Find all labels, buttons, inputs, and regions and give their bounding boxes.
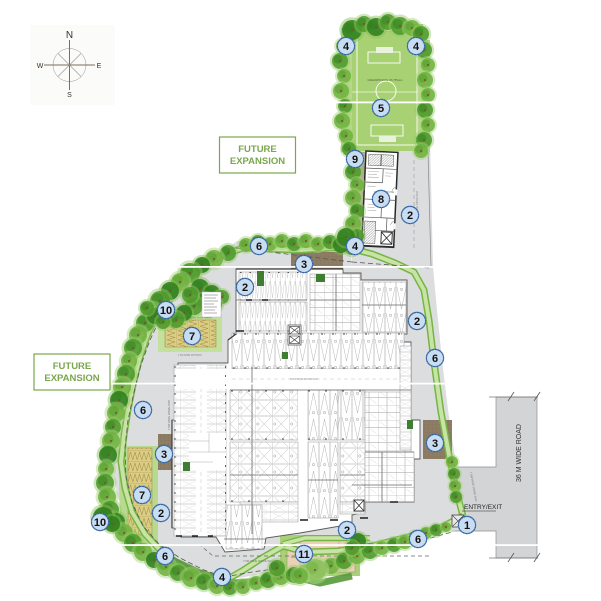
svg-text:ENTRY/EXIT: ENTRY/EXIT [464,504,502,511]
svg-text:6: 6 [432,353,438,365]
svg-text:6: 6 [256,241,262,253]
svg-text:4: 4 [219,572,226,584]
svg-text:FUTURE: FUTURE [53,361,92,372]
svg-text:36 M WIDE ROAD: 36 M WIDE ROAD [516,424,523,482]
svg-text:3: 3 [432,438,438,450]
svg-text:2: 2 [414,316,420,328]
svg-text:1.5M WIDE PATHWAY: 1.5M WIDE PATHWAY [178,354,202,357]
svg-text:2: 2 [158,508,164,520]
svg-text:2: 2 [242,282,248,294]
svg-text:4: 4 [352,241,359,253]
svg-text:9: 9 [352,154,358,166]
svg-text:2: 2 [407,210,413,222]
svg-text:COMMUNICABLE PARKING STRIP GRE: COMMUNICABLE PARKING STRIP GREEN [168,317,212,320]
svg-text:4: 4 [343,41,350,53]
svg-text:7: 7 [139,490,145,502]
svg-text:10: 10 [160,305,172,317]
svg-text:4: 4 [413,41,420,53]
svg-text:7: 7 [189,331,195,343]
svg-text:W: W [37,63,44,70]
svg-text:8.5M WIDE DRIVE WAY: 8.5M WIDE DRIVE WAY [290,377,319,381]
svg-text:EXPANSION: EXPANSION [44,373,99,384]
svg-text:1: 1 [464,520,470,532]
svg-text:3: 3 [301,259,307,271]
svg-text:S: S [67,92,72,99]
svg-text:EXPANSION: EXPANSION [230,156,285,167]
svg-text:6: 6 [415,534,421,546]
svg-text:N: N [66,30,73,41]
svg-text:E: E [97,63,102,70]
svg-text:6: 6 [162,551,168,563]
svg-text:5: 5 [378,103,384,115]
svg-text:7.5M WIDE DRIVE WAY: 7.5M WIDE DRIVE WAY [167,400,171,431]
svg-text:10: 10 [94,517,106,529]
svg-text:FUTURE: FUTURE [238,144,277,155]
svg-text:2: 2 [344,525,350,537]
svg-text:GREEN/PRIVATE OS 755sqm: GREEN/PRIVATE OS 755sqm [367,78,402,82]
svg-text:3: 3 [161,449,167,461]
svg-text:6: 6 [140,405,146,417]
svg-text:11: 11 [298,549,310,561]
svg-text:8: 8 [378,194,384,206]
